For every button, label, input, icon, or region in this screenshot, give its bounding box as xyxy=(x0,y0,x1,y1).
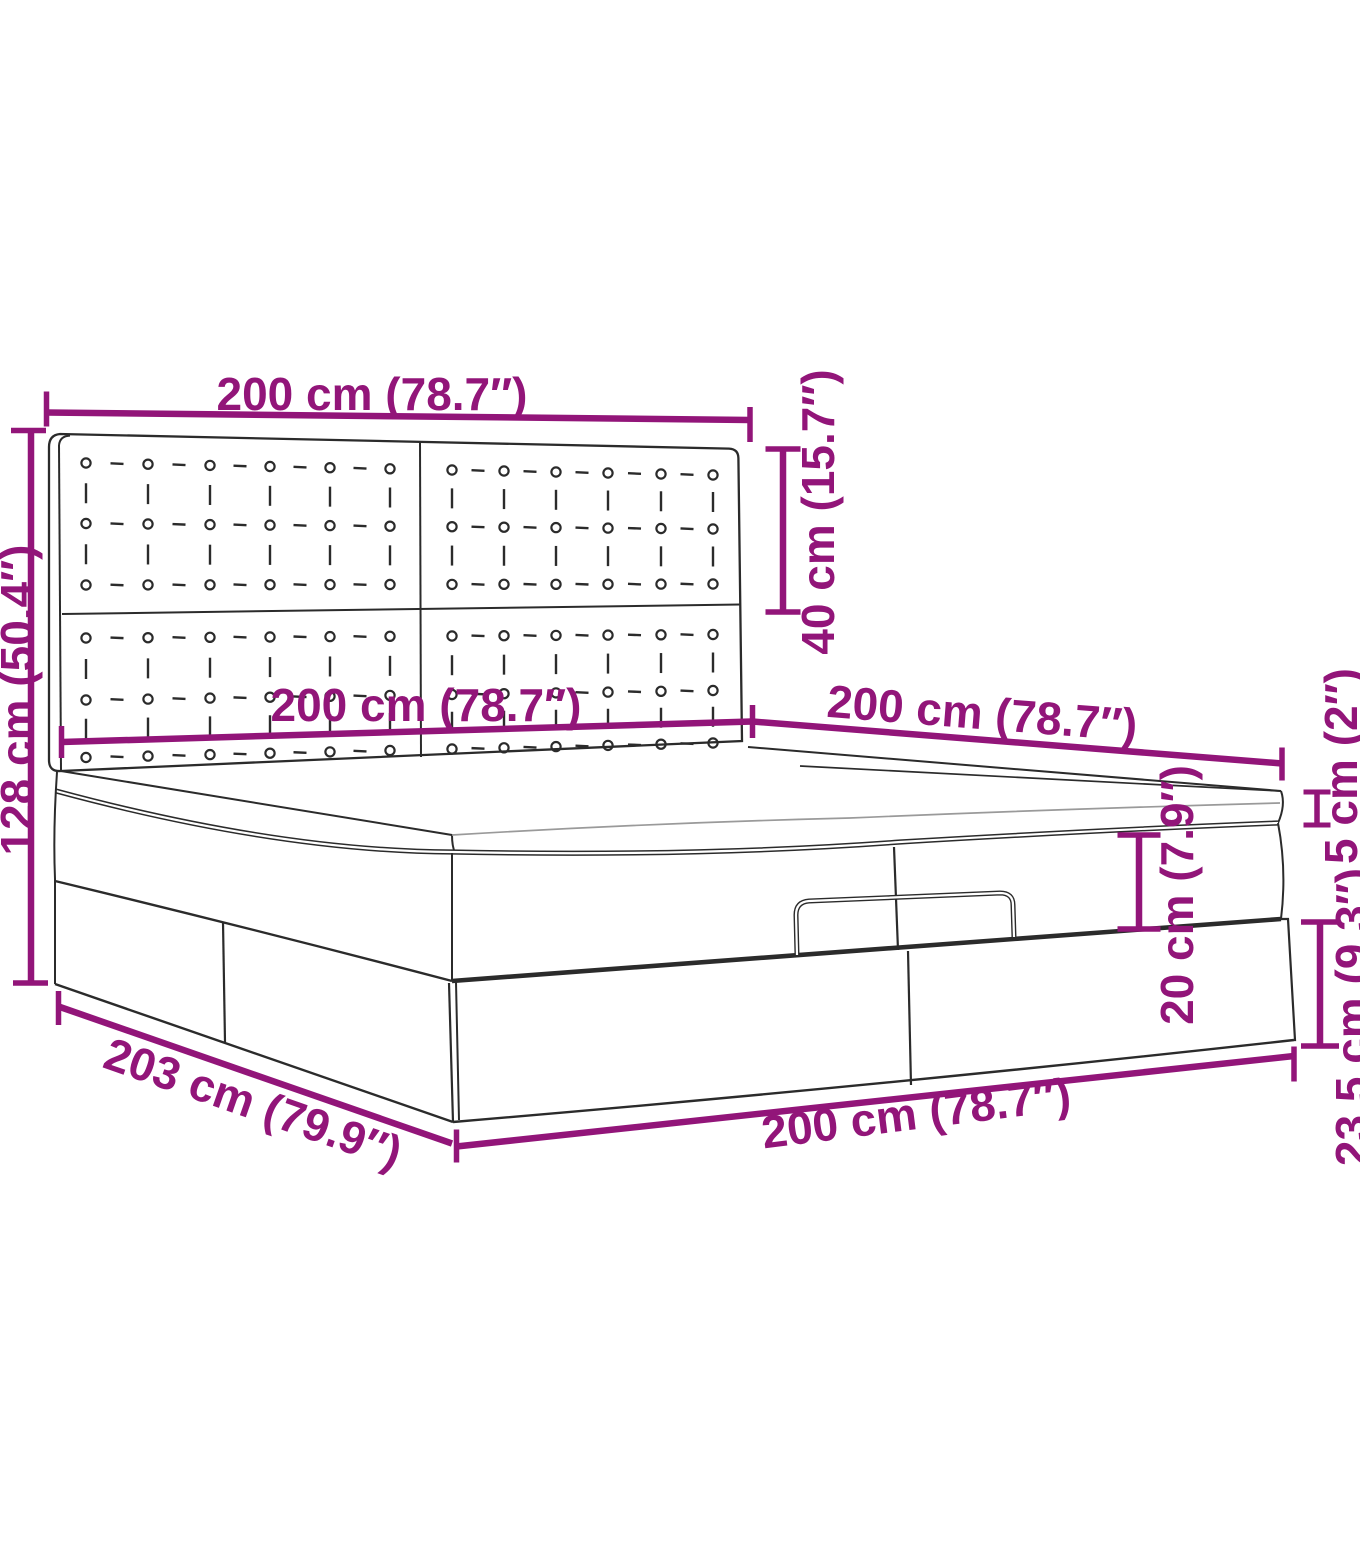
svg-text:23.5 cm (9.3″): 23.5 cm (9.3″) xyxy=(1326,868,1360,1166)
svg-text:5 cm (2″): 5 cm (2″) xyxy=(1315,668,1360,864)
svg-text:200 cm (78.7″): 200 cm (78.7″) xyxy=(271,679,582,731)
svg-text:200 cm (78.7″): 200 cm (78.7″) xyxy=(217,368,528,420)
svg-text:203 cm (79.9″): 203 cm (79.9″) xyxy=(98,1027,409,1178)
svg-text:20 cm (7.9″): 20 cm (7.9″) xyxy=(1151,765,1203,1025)
svg-text:200 cm (78.7″): 200 cm (78.7″) xyxy=(758,1068,1073,1159)
svg-text:128 cm (50.4″): 128 cm (50.4″) xyxy=(0,545,43,856)
svg-text:40 cm (15.7″): 40 cm (15.7″) xyxy=(792,369,844,654)
